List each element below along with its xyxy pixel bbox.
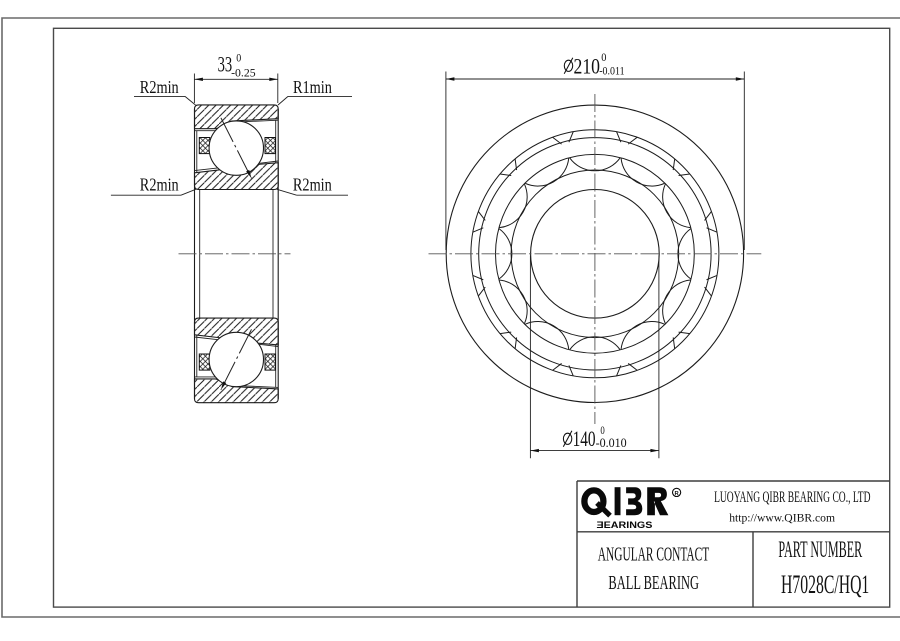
svg-text:R2min: R2min: [293, 176, 332, 195]
svg-text:PART NUMBER: PART NUMBER: [778, 537, 862, 563]
svg-text:R1min: R1min: [293, 78, 332, 97]
svg-text:R2min: R2min: [140, 176, 179, 195]
svg-text:LUOYANG QIBR BEARING CO., LTD: LUOYANG QIBR BEARING CO., LTD: [714, 488, 871, 505]
svg-text:-0.010: -0.010: [596, 438, 627, 451]
svg-text:BALL BEARING: BALL BEARING: [608, 571, 699, 593]
svg-text:210: 210: [574, 54, 601, 79]
svg-text:ƎEARINGS: ƎEARINGS: [597, 519, 653, 530]
svg-text:-0.011: -0.011: [599, 65, 625, 78]
svg-text:0: 0: [601, 51, 606, 64]
svg-text:0: 0: [600, 426, 605, 438]
svg-text:140: 140: [573, 427, 596, 452]
svg-text:0: 0: [236, 52, 241, 65]
svg-text:33: 33: [218, 53, 233, 77]
svg-text:http://www.QIBR.com: http://www.QIBR.com: [729, 512, 835, 525]
svg-text:R2min: R2min: [140, 78, 179, 97]
svg-text:ANGULAR CONTACT: ANGULAR CONTACT: [598, 543, 710, 565]
svg-text:H7028C/HQ1: H7028C/HQ1: [781, 569, 869, 598]
svg-text:-0.25: -0.25: [231, 67, 256, 80]
